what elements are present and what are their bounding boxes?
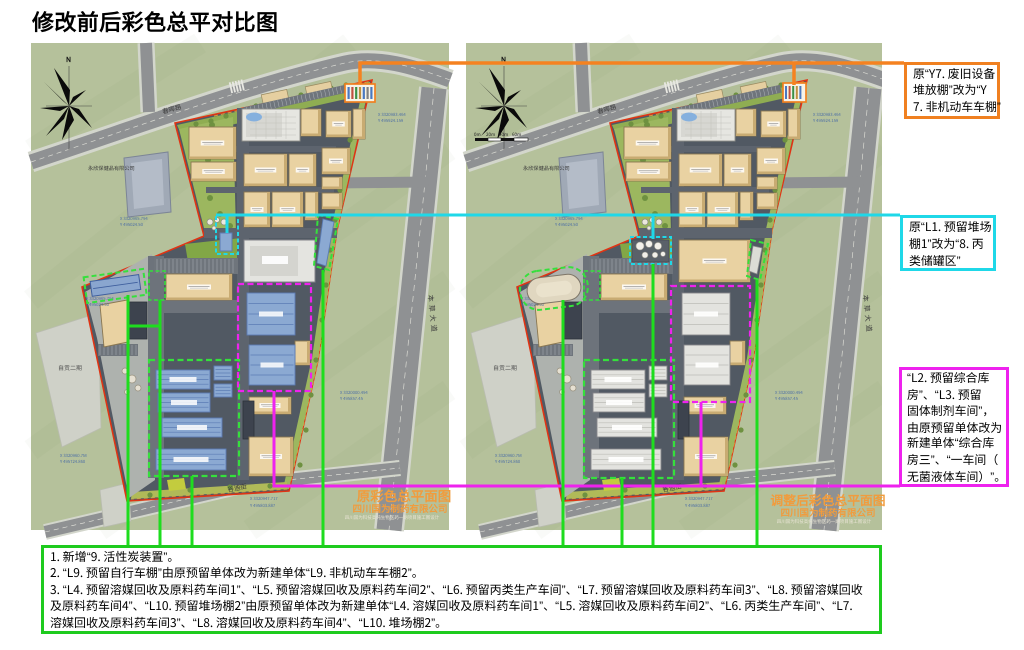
svg-text:四川国为制药有限公司: 四川国为制药有限公司 xyxy=(780,505,875,519)
svg-text:四川国为科技高纯生物医药一期项目施工图设计: 四川国为科技高纯生物医药一期项目施工图设计 xyxy=(777,518,872,525)
svg-text:0m: 0m xyxy=(474,132,481,138)
svg-text:40m: 40m xyxy=(499,132,508,138)
svg-text:20m: 20m xyxy=(486,132,495,138)
svg-text:四川国为科技高纯生物医药一期项目施工图设计: 四川国为科技高纯生物医药一期项目施工图设计 xyxy=(345,514,440,521)
svg-text:四川国为制药有限公司: 四川国为制药有限公司 xyxy=(352,501,447,515)
svg-text:60m: 60m xyxy=(512,132,521,138)
